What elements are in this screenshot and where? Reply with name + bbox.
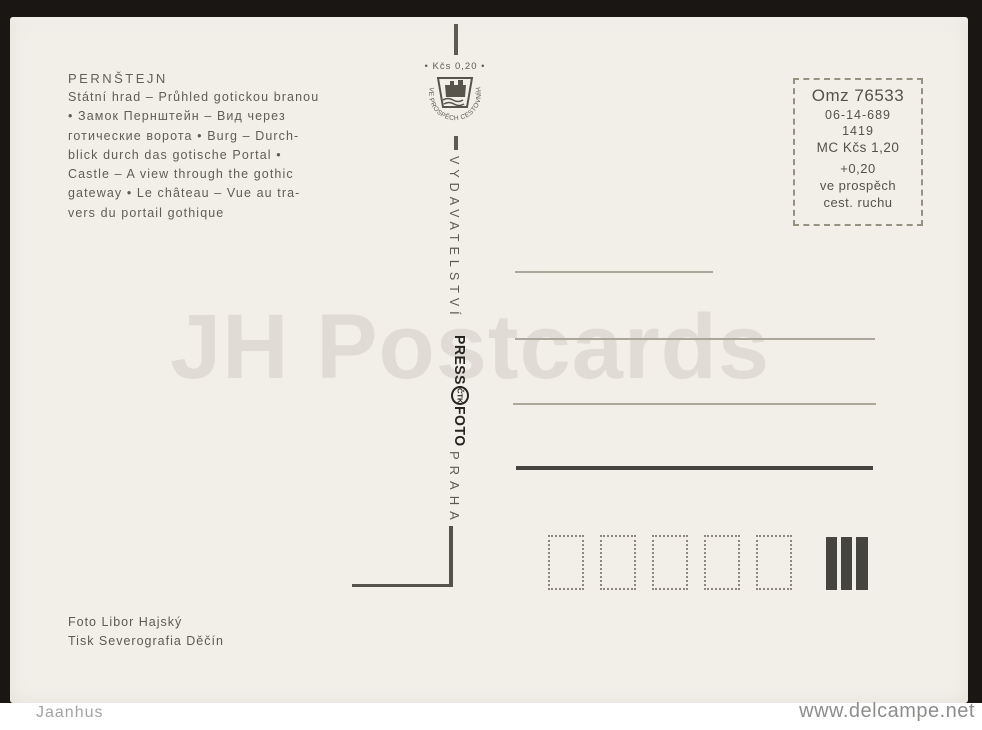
description-line: vers du portail gothique bbox=[68, 204, 408, 223]
water-waves bbox=[443, 99, 464, 106]
price-code-box: Omz 76533 06-14-689 1419 MC Kčs 1,20 +0,… bbox=[793, 78, 923, 226]
photo-credit: Foto Libor Hajský bbox=[68, 613, 224, 632]
postcard-title: PERNŠTEJN bbox=[68, 71, 168, 86]
address-line-1 bbox=[515, 271, 713, 273]
divider-bracket-horizontal bbox=[352, 584, 452, 588]
pressfoto-logo: PRESS ČTK FOTO bbox=[451, 335, 475, 447]
purpose-text-2: cest. ruchu bbox=[795, 195, 921, 210]
address-line-heavy bbox=[516, 466, 873, 470]
ctk-badge: ČTK bbox=[451, 386, 469, 405]
description-line: blick durch das gotische Portal • bbox=[68, 146, 408, 165]
postal-code-box-4 bbox=[704, 535, 740, 590]
order-code: Omz 76533 bbox=[795, 86, 921, 106]
description-line: Státní hrad – Průhled gotickou branou bbox=[68, 88, 408, 107]
postcard-back: JH Postcards PERNŠTEJN Státní hrad – Prů… bbox=[10, 17, 968, 703]
divider-dash-middle bbox=[454, 136, 458, 150]
city-vertical-text: PRAHA bbox=[447, 451, 462, 531]
pressfoto-foto-text: FOTO bbox=[452, 406, 469, 447]
postal-code-box-2 bbox=[600, 535, 636, 590]
postcard-content: PERNŠTEJN Státní hrad – Průhled gotickou… bbox=[10, 17, 968, 703]
marketplace-url[interactable]: www.delcampe.net bbox=[799, 700, 975, 723]
description-line: Castle – A view through the gothic bbox=[68, 165, 408, 184]
credits-block: Foto Libor Hajský Tisk Severografia Děčí… bbox=[68, 613, 224, 651]
franking-bar-3 bbox=[856, 537, 868, 590]
address-line-2 bbox=[515, 338, 875, 340]
pressfoto-press-text: PRESS bbox=[452, 335, 469, 385]
divider-bracket-vertical bbox=[449, 526, 453, 587]
address-line-3 bbox=[513, 403, 876, 405]
catalog-number: 06-14-689 bbox=[795, 108, 921, 122]
ctk-badge-text: ČTK bbox=[456, 388, 465, 403]
postal-code-box-3 bbox=[652, 535, 688, 590]
seller-name: Jaanhus bbox=[36, 704, 104, 722]
purpose-text-1: ve prospěch bbox=[795, 178, 921, 193]
publisher-vertical-text: VYDAVATELSTVÍ bbox=[447, 156, 461, 332]
postal-code-box-1 bbox=[548, 535, 584, 590]
postal-code-box-5 bbox=[756, 535, 792, 590]
divider-dash-top bbox=[454, 24, 458, 55]
franking-bar-2 bbox=[841, 537, 852, 590]
price-text: MC Kčs 1,20 bbox=[795, 140, 921, 155]
surcharge-text: +0,20 bbox=[795, 161, 921, 176]
castle-icon bbox=[445, 80, 466, 97]
series-number: 1419 bbox=[795, 124, 921, 138]
print-credit: Tisk Severografia Děčín bbox=[68, 632, 224, 651]
description-line: • Замок Пернштейн – Вид через bbox=[68, 107, 408, 126]
description-line: gateway • Le château – Vue au tra- bbox=[68, 184, 408, 203]
postcard-description: Státní hrad – Průhled gotickou branou• З… bbox=[68, 88, 408, 223]
description-line: готические ворота • Burg – Durch- bbox=[68, 127, 408, 146]
tourism-stamp-emblem: VE PROSPĚCH CESTOVNÍHO RUCHU bbox=[417, 71, 493, 142]
franking-bar-1 bbox=[826, 537, 837, 590]
